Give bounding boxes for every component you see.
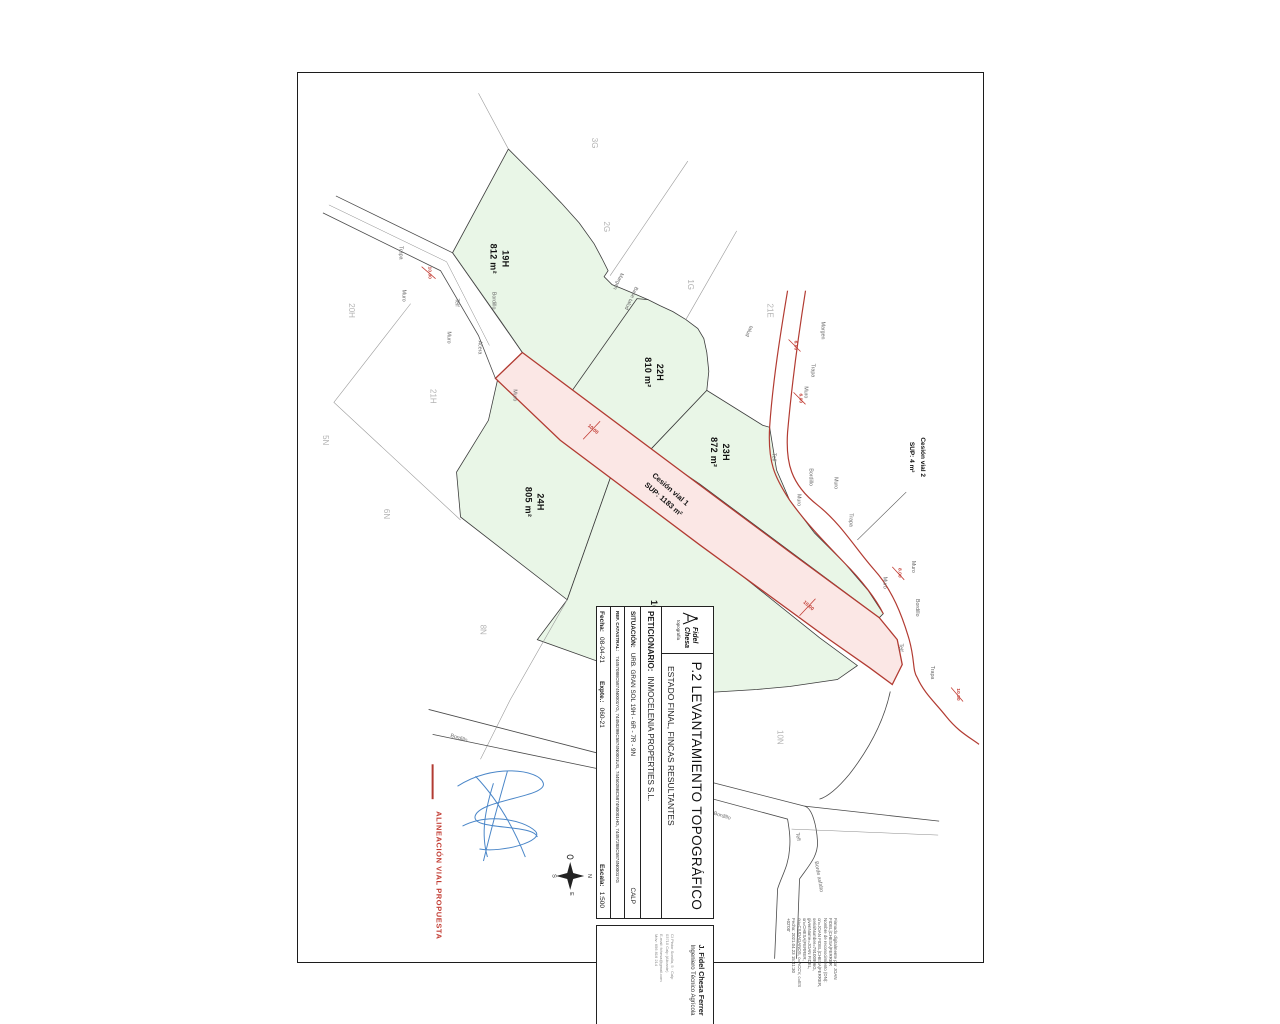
date-label: Fecha: <box>598 611 605 632</box>
compass-north: N <box>586 874 592 878</box>
cadastral-label: REF. CATASTRAL: <box>615 611 620 651</box>
parcel-area: 872 m² <box>709 437 719 467</box>
region-label: 5N <box>321 435 330 445</box>
engineer-name: J. Fidel Chesa Ferrer <box>697 944 706 1015</box>
road-label: Muro <box>832 477 838 489</box>
road-label: Trapa <box>847 513 853 527</box>
road-label: Margen <box>611 272 624 291</box>
scale-label: Escala: <box>598 864 605 887</box>
compass-south: S <box>550 874 556 878</box>
contact-line: C/ Pintor Sorolla, 5 · Calp <box>670 934 675 982</box>
dimension-label: 8.00 <box>896 568 902 578</box>
road-label: Bordillo <box>490 292 496 310</box>
signature-line: ou=CIUDADANOS, o=ACCV, c=ES <box>797 918 802 1024</box>
legend-alignment: ALINEACIÓN VIAL PROPUESTA <box>433 764 444 939</box>
dimension-label: 6.00 <box>798 394 804 404</box>
legend-label: ALINEACIÓN VIAL PROPUESTA <box>435 811 444 939</box>
signature-line: Fecha: 2021.04.23 15:41:30 <box>791 918 796 1024</box>
compass-star <box>556 862 584 890</box>
contact-line: 03710 Calp (Alicante) <box>664 934 669 982</box>
road-label: Margen <box>819 322 825 340</box>
company-logo: Fidel Chesa topografía <box>662 607 713 654</box>
engineer-block: J. Fidel Chesa Ferrer Ingeniero Técnico … <box>596 925 714 1024</box>
parcel-area: 812 m² <box>488 244 498 274</box>
signature-line: givenName=JOAN FIDEL, <box>807 918 812 1024</box>
region-label: 3G <box>590 138 599 149</box>
region-label: 1G <box>686 279 695 290</box>
road-label: Telf <box>897 644 903 653</box>
file-number: 060-21 <box>598 708 605 728</box>
road-label: Trapa <box>929 666 935 680</box>
logo-name-line2: Chesa <box>683 627 690 648</box>
road-label: Muro <box>511 389 517 401</box>
drawing-title: P.2 LEVANTAMIENTO TOPOGRÁFICO <box>680 654 713 918</box>
situation-label: SITUACIÓN: <box>629 611 636 648</box>
municipality-value: CALP <box>629 888 636 914</box>
region-label: 10N <box>776 730 785 745</box>
road-label: Acera <box>476 341 482 355</box>
cadastral-value: 7445708BC5874N0001YG, 7445029BC5874N0001… <box>615 656 620 883</box>
parcel-id: 22H <box>655 364 665 381</box>
petitioner-value: INMOCELENIA PROPERTIES S.L. <box>647 676 656 801</box>
signature-line: sn=CHESA|FERRER, <box>802 918 807 1024</box>
cession-2-leader-line <box>857 492 906 540</box>
road-label: Telf <box>771 453 777 462</box>
situation-value: URB. GRAN SOL 19H - 6R - 7R - 9N <box>629 653 636 756</box>
road-label: Telf <box>454 299 460 308</box>
dimension-label: 6.00 <box>793 341 799 351</box>
parcel-id: 24H <box>535 493 545 510</box>
file-label: Expte.: <box>598 681 605 703</box>
road-label: Muro <box>446 332 452 344</box>
road-label: talud <box>743 325 753 338</box>
road-label: Bordillo <box>450 733 469 744</box>
signature-line: Firmado digitalmente por JOAN <box>833 918 838 1024</box>
cession-2-sup: SUP: 4 m² <box>908 442 915 473</box>
logo-subtitle: topografía <box>677 620 682 640</box>
handwritten-signature <box>458 771 544 861</box>
signature-line: cn=JOAN FIDEL|CHESA|FERRER, <box>817 918 822 1024</box>
road-label: Muro <box>796 494 802 506</box>
title-block: Fidel Chesa topografía P.2 LEVANTAMIENTO… <box>596 606 714 919</box>
road-label: Bordillo <box>914 599 920 617</box>
engineer-contact: C/ Pintor Sorolla, 5 · Calp 03710 Calp (… <box>653 926 675 982</box>
road-label: Bordillo <box>808 468 814 486</box>
signature-line: Nombre de reconocimiento (DN): <box>822 918 827 1024</box>
cession-2-name: Cesión vial 2 <box>919 437 926 477</box>
dimension-label: 10.00 <box>955 688 961 701</box>
region-label: 6N <box>382 509 391 519</box>
logo-name-line1: Fidel <box>691 627 698 648</box>
road-label: Muro <box>881 577 887 589</box>
road-label: Muro <box>910 561 916 573</box>
road-label: Telf <box>794 832 801 842</box>
region-label: 21H <box>429 389 438 404</box>
drawing-sheet: 19H 812 m² 22H 810 m² 23H 872 m² 24H 805… <box>297 72 984 963</box>
engineer-role: Ingeniero Técnico Agrícola <box>689 945 695 1016</box>
road-label: Trapa <box>398 246 404 260</box>
road-label: Muro <box>401 290 407 302</box>
mountain-logo-icon <box>683 612 699 625</box>
petitioner-label: PETICIONARIO: <box>647 611 656 671</box>
parcel-area: 810 m² <box>643 357 653 387</box>
region-label: 21E <box>766 304 775 318</box>
region-label: 2G <box>602 222 611 233</box>
road-label: Borde asfalto <box>813 861 824 893</box>
road-label: Trapa <box>810 364 816 378</box>
parcel-area: 805 m² <box>523 487 533 517</box>
region-label: 8N <box>478 625 487 635</box>
compass-east: E <box>568 892 574 896</box>
dimension-label: 10.00 <box>427 266 433 279</box>
compass-rose: N S E <box>550 855 592 896</box>
date-value: 08-04-21 <box>598 637 605 663</box>
digital-signature-text: Firmado digitalmente por JOAN FIDEL|CHES… <box>743 918 838 1024</box>
title-block-header: Fidel Chesa topografía P.2 LEVANTAMIENTO… <box>661 607 713 918</box>
road-label: Bordillo <box>713 811 732 822</box>
drawing-subtitle: ESTADO FINAL, FINCAS RESULTANTES <box>662 654 680 918</box>
parcel-id: 19H <box>500 250 510 267</box>
scale-value: 1:500 <box>598 892 605 914</box>
parcel-id: 23H <box>721 444 731 461</box>
compass-west-glyph <box>567 855 573 859</box>
document-canvas: 19H 812 m² 22H 810 m² 23H 872 m² 24H 805… <box>0 0 1280 1024</box>
region-label: 20H <box>347 303 356 318</box>
contact-line: E-mail: fchesa@gmail.com <box>659 934 664 982</box>
